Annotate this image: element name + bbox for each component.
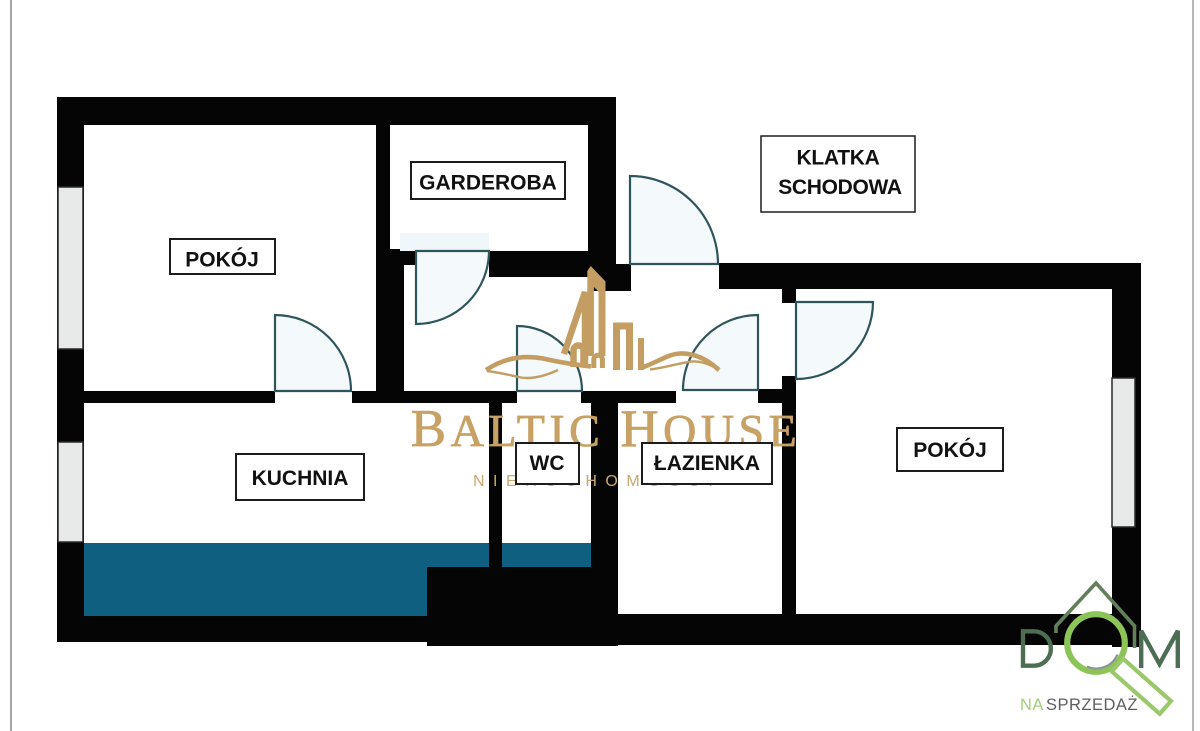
svg-text:GARDEROBA: GARDEROBA xyxy=(419,172,557,195)
svg-text:ŁAZIENKA: ŁAZIENKA xyxy=(654,452,760,475)
svg-text:NA: NA xyxy=(1020,696,1044,714)
svg-text:SCHODOWA: SCHODOWA xyxy=(778,176,902,199)
svg-text:POKÓJ: POKÓJ xyxy=(185,248,259,272)
svg-text:KLATKA: KLATKA xyxy=(797,147,880,170)
svg-text:POKÓJ: POKÓJ xyxy=(913,438,987,462)
svg-text:KUCHNIA: KUCHNIA xyxy=(252,467,349,490)
svg-text:SPRZEDAŻ: SPRZEDAŻ xyxy=(1046,695,1138,714)
svg-text:WC: WC xyxy=(530,452,565,475)
